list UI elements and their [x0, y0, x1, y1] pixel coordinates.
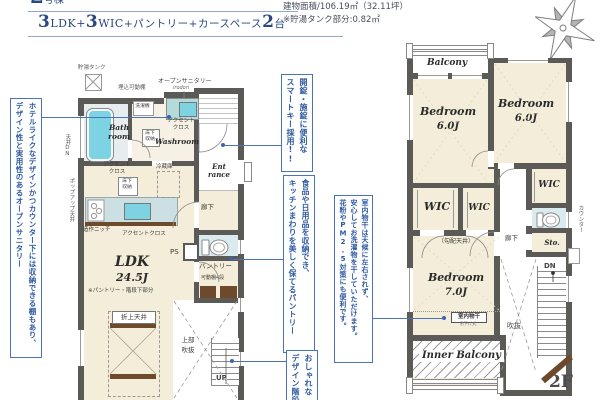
plan-n1: 3	[38, 12, 50, 32]
wic2-label: WIC	[461, 203, 497, 213]
bedroom2-size-label: 6.0J	[498, 113, 554, 125]
niche-label: 造作ニッチ	[83, 227, 111, 233]
note-line: キッチンまわりを美しく保てるパントリー	[286, 179, 299, 349]
raised-ceiling-band-bottom	[110, 374, 156, 379]
f1-wall-top-entrance	[194, 88, 244, 94]
f2-window-balcony-1	[418, 73, 448, 79]
accent-l2: クロス	[100, 169, 134, 176]
popup-ceiling-label: ポップアップ天井	[68, 178, 74, 222]
pantry-shelf4-label: 可動棚4段	[201, 276, 224, 282]
building-area-line1: 建物面積/106.19㎡（32.11坪）	[283, 1, 413, 14]
f2-bedroom3-door-gap	[494, 232, 500, 256]
underfloor-l2: 収納	[118, 185, 136, 191]
note-smart-key: 開錠・施錠に便利な スマートキー採用!!	[281, 74, 313, 172]
leader-dot-smart-key	[221, 143, 225, 147]
fridge-space	[157, 171, 180, 198]
bedroom3-label: Bedroom	[428, 272, 484, 285]
plan-plus1: +	[76, 17, 86, 30]
f2-wic1-door-gap	[420, 230, 444, 236]
ldk-note-label: ※パントリー・階段下部分	[88, 288, 153, 294]
f2-sto-door-gap	[526, 234, 532, 250]
f1-bath-door-gap	[128, 140, 132, 158]
f2-stairs-divider-line	[537, 266, 538, 358]
plan-mid: +パントリー+カースペース	[124, 18, 262, 30]
washroom-label: Washroom	[155, 138, 199, 147]
f1-porch-tile	[199, 94, 238, 124]
sanitary-sink-icon	[179, 102, 197, 117]
note-open-sanitary: ホテルライクなデザインかつカウンター下には収納できる棚もあり、 デザイン性と実用…	[10, 98, 42, 358]
accent-cloth-washroom-label: アクセント クロス	[164, 118, 198, 132]
pantry-shelf-right	[220, 286, 237, 298]
leader-pantry	[233, 259, 284, 260]
ldk-label: LDK	[107, 254, 157, 270]
ceiling-dn-label: 天井DN	[64, 134, 70, 157]
f1-window-bath	[78, 116, 84, 158]
f2-balcony-rail-bar2	[408, 51, 494, 56]
note-line: 室内物干は天候に左右されず、	[359, 199, 370, 359]
void-above-label-2: 吹抜	[178, 347, 198, 354]
lot-number-unit: 号棟	[44, 0, 64, 6]
f1-hall-label: 廊下	[201, 204, 214, 211]
washer-label: 洗濯機	[133, 104, 152, 110]
plan-summary: 3LDK+3WIC+パントリー+カースペース2台	[38, 13, 286, 33]
note-line: ホテルライクなデザインかつカウンター下には収納できる棚もあり、	[26, 102, 39, 354]
entrance-label: Ent rance	[202, 163, 236, 179]
f2-wall-toilet-bottom	[526, 228, 572, 233]
note-line: スマートキー採用!!	[284, 78, 297, 168]
leader-smart-key	[225, 145, 282, 146]
bathroom-l2: room	[107, 133, 131, 142]
plan-u2: WIC	[98, 17, 124, 30]
f2-window-left-1	[407, 95, 413, 140]
kitchen-sink-icon	[124, 203, 151, 220]
note-line: デザイン性と実用性のあるオープンサニタリー	[13, 102, 26, 354]
ps-label: PS	[170, 248, 179, 256]
note-line: おしゃれな	[302, 354, 315, 400]
tank-label: 貯湯タンク	[78, 65, 106, 71]
f2-inner-rail-bar2	[408, 385, 504, 390]
compass-icon	[523, 0, 600, 66]
f2-window-balcony-2	[452, 73, 482, 79]
floorplan-page: 2号棟 3LDK+3WIC+パントリー+カースペース2台 建物面積/106.19…	[0, 0, 600, 400]
plan-n3: 2	[262, 12, 274, 32]
up-label: UP	[216, 374, 227, 382]
f2-toilet-floor	[532, 208, 566, 230]
sto-label: Sto.	[540, 239, 564, 247]
leader-dot-drying	[442, 316, 446, 320]
accent-cloth-kitchen-label: アクセント クロス	[100, 162, 134, 176]
note-indoor-drying: 室内物干は天候に左右されず、 安心してお洗濯物を干していただけます。 花粉やPM…	[334, 195, 373, 363]
f2-balcony-rail-post-left	[406, 43, 413, 59]
open-sanitary-sub-label: irodori	[173, 86, 189, 92]
f2-window-left-2	[407, 268, 413, 312]
plan-n2: 3	[86, 12, 98, 32]
f1-toilet-floor	[199, 235, 238, 258]
f2-wall-sto-bottom	[526, 252, 572, 257]
f2-stairs	[537, 266, 566, 358]
note-design-stairs: おしゃれな デザイン階段	[286, 350, 318, 400]
floor2-tag: 2F	[549, 373, 573, 393]
wic3-label: WIC	[532, 180, 566, 190]
f1-wall-toilet-top	[194, 230, 238, 235]
f2-balcony-rail-post-right	[487, 43, 494, 59]
raised-ceiling-label: 折上天井	[112, 311, 156, 324]
bedroom2-label: Bedroom	[498, 98, 554, 111]
leader-drying	[372, 318, 444, 319]
f2-bedroom2-door-gap	[498, 163, 514, 169]
accent-l1: アクセント	[100, 162, 134, 169]
f2-bedroom1-door-gap	[488, 151, 494, 167]
void-above-label-1: 上部	[178, 337, 198, 344]
f1-window-pantry	[238, 298, 244, 312]
balcony-label: Balcony	[427, 58, 467, 68]
header-rule-bottom	[28, 36, 343, 37]
entrance-l2: rance	[202, 171, 236, 179]
building-area-line2: ※貯湯タンク部分:0.82㎡	[283, 14, 413, 27]
note-pantry: 食品や日用品を収納でき、 キッチンまわりを美しく保てるパントリー	[283, 175, 315, 353]
pantry-shelf-left	[200, 286, 216, 298]
bathroom-label: Bath room	[107, 124, 131, 141]
f2-toilet-door-gap	[526, 210, 532, 226]
dn-label: DN	[544, 262, 556, 270]
f1-underfloor-label-kitchen: 床下 収納	[118, 179, 136, 191]
accent-l2: クロス	[164, 125, 198, 132]
bedroom3-size-label: 7.0J	[428, 287, 484, 299]
note-line: 花粉やPM2.5対策にも便利です。	[337, 199, 348, 359]
f2-window-right-1	[566, 82, 572, 122]
f1-window-toilet	[238, 240, 244, 254]
f1-entry-door-leaf	[244, 162, 252, 182]
sloped-ceiling-label: （勾配天井）	[429, 239, 483, 246]
f2-inner-rail-bar1	[408, 379, 504, 384]
note-line: 食品や日用品を収納でき、	[299, 179, 312, 349]
f2-void-label: 吹抜	[507, 322, 521, 330]
note-line: 安心してお洗濯物を干していただけます。	[348, 199, 359, 359]
building-area: 建物面積/106.19㎡（32.11坪） ※貯湯タンク部分:0.82㎡	[283, 1, 413, 27]
f1-entrance-floor	[199, 124, 238, 190]
f2-window-right-2	[566, 212, 572, 228]
f1-hall-door-gap	[194, 202, 199, 228]
bedroom1-label: Bedroom	[420, 106, 476, 119]
f1-tank-box	[85, 74, 102, 91]
wic1-label: WIC	[415, 201, 459, 214]
counter-label: カウンター	[577, 205, 583, 233]
ps-shaft	[183, 243, 199, 261]
note-line: 開錠・施錠に便利な	[297, 78, 310, 168]
f1-entrance-step-line	[199, 190, 238, 191]
indoor-drying-type-label: 吊下げ式	[451, 322, 485, 327]
f1-window-ldk-left	[78, 330, 84, 366]
leader-dot-stairs	[230, 359, 234, 363]
f2-inner-rail-post-left	[406, 377, 413, 394]
leader-dot-sanitary	[167, 115, 171, 119]
f2-window-right-3	[566, 276, 572, 302]
f2-inner-rail-post-right	[497, 377, 504, 394]
lot-number: 2号棟	[30, 0, 64, 8]
note-line: デザイン階段	[289, 354, 302, 400]
accent-cloth-counter-label: アクセントクロス	[122, 231, 166, 237]
inner-balcony-label: Inner Balcony	[419, 350, 504, 362]
f2-wall-bedroom3-bottom	[407, 335, 506, 341]
f2-wic2-door-gap	[466, 230, 488, 236]
recessed-shelf-label: 埋込可動棚	[118, 85, 146, 91]
f2-window-bedroom2-top	[508, 58, 548, 63]
f1-wall-pantry-bottom	[194, 298, 244, 303]
lot-number-digit: 2	[30, 0, 44, 8]
f2-wall-wic3-bottom	[526, 203, 572, 208]
f2-balcony-rail-bar1	[408, 45, 494, 50]
accent-l1: アクセント	[164, 118, 198, 125]
kitchen-counter-edge	[85, 222, 176, 226]
header-rule-top	[28, 11, 298, 12]
leader-stairs	[234, 361, 287, 362]
pantry-label: パントリー	[199, 263, 232, 270]
f2-hall-label: 廊下	[505, 235, 518, 242]
leader-dot-pantry	[229, 257, 233, 261]
plan-u1: LDK	[50, 17, 76, 30]
fridge-label: 冷蔵庫	[156, 164, 173, 170]
ldk-size-label: 24.5J	[107, 272, 157, 285]
f2-wall-wic-top	[413, 183, 500, 188]
f2-counter-shape	[568, 248, 580, 264]
bedroom1-size-label: 6.0J	[420, 121, 476, 133]
leader-sanitary	[42, 117, 170, 118]
